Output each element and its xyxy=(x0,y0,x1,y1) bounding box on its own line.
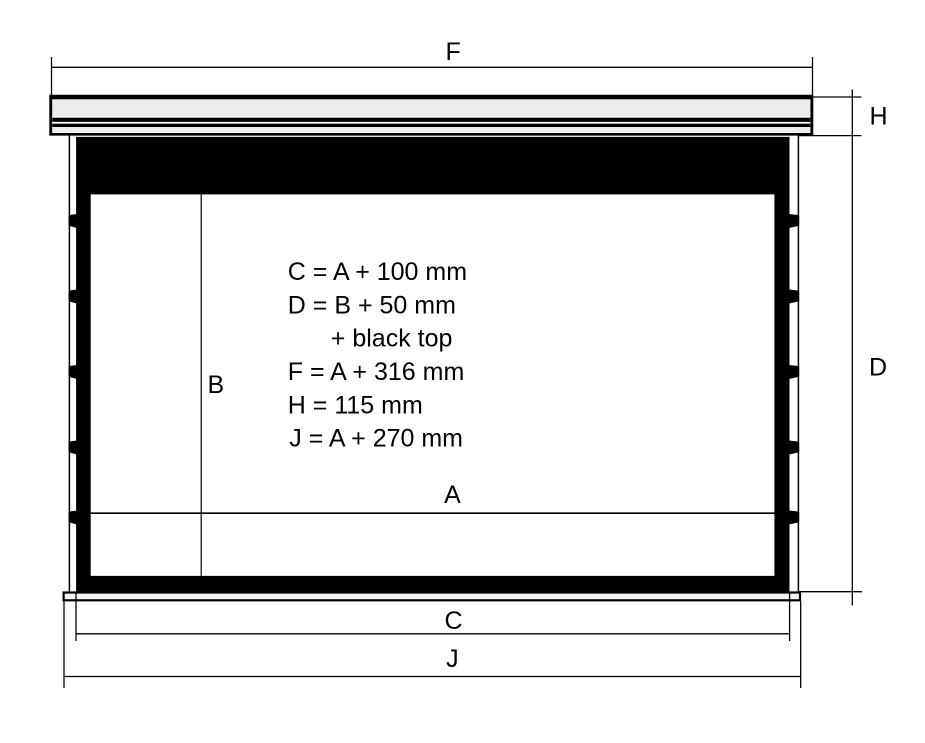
svg-text:J = A + 270 mm: J = A + 270 mm xyxy=(289,425,463,453)
svg-text:C: C xyxy=(444,607,462,635)
svg-text:+ black top: + black top xyxy=(331,325,453,353)
svg-text:F: F xyxy=(446,38,461,66)
svg-text:A: A xyxy=(444,481,461,509)
svg-text:F = A + 316 mm: F = A + 316 mm xyxy=(288,358,464,386)
svg-text:C = A + 100 mm: C = A + 100 mm xyxy=(288,258,467,286)
svg-text:D: D xyxy=(869,353,887,381)
svg-text:J: J xyxy=(446,645,459,673)
svg-text:D = B + 50 mm: D = B + 50 mm xyxy=(288,291,456,319)
svg-text:B: B xyxy=(208,371,225,399)
svg-text:H = 115 mm: H = 115 mm xyxy=(288,391,423,419)
svg-text:H: H xyxy=(869,103,887,131)
